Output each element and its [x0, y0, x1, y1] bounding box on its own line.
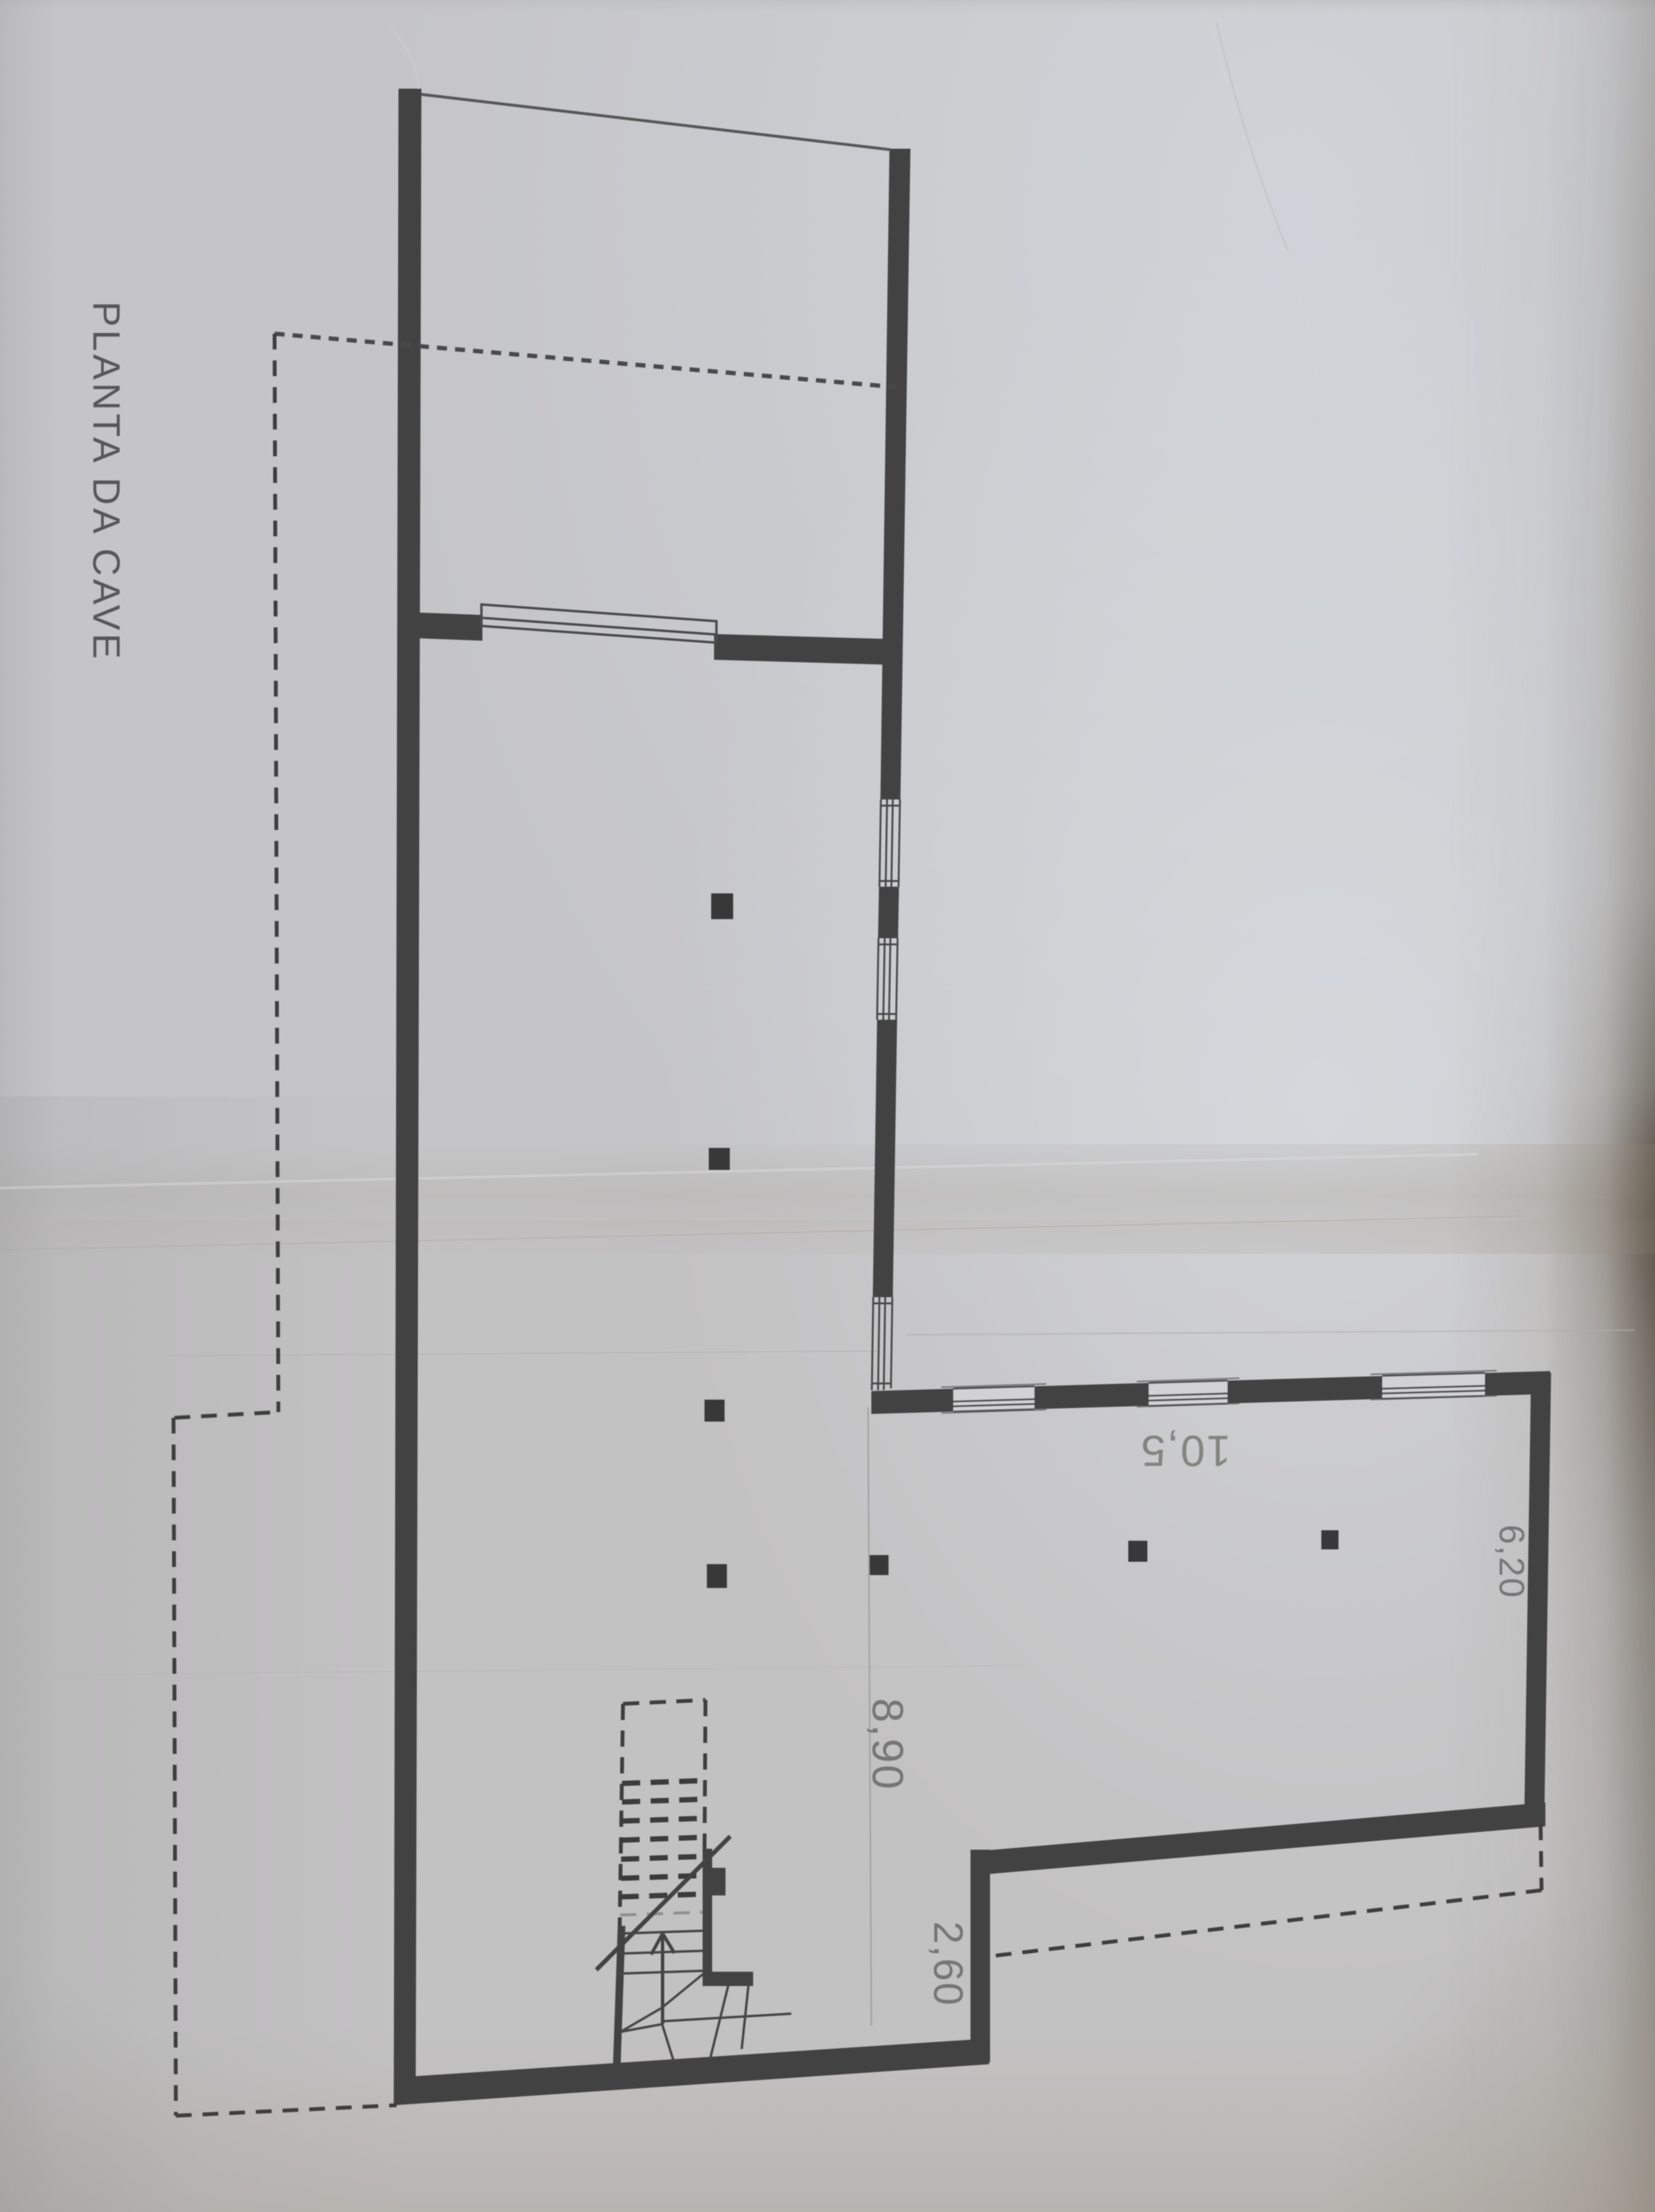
svg-text:8,90: 8,90 [863, 1698, 912, 1791]
svg-text:6,20: 6,20 [1492, 1525, 1532, 1599]
svg-text:PLANTA DA CAVE: PLANTA DA CAVE [85, 301, 128, 659]
svg-text:10,5: 10,5 [1140, 1426, 1231, 1475]
svg-text:2,60: 2,60 [925, 1921, 971, 2007]
